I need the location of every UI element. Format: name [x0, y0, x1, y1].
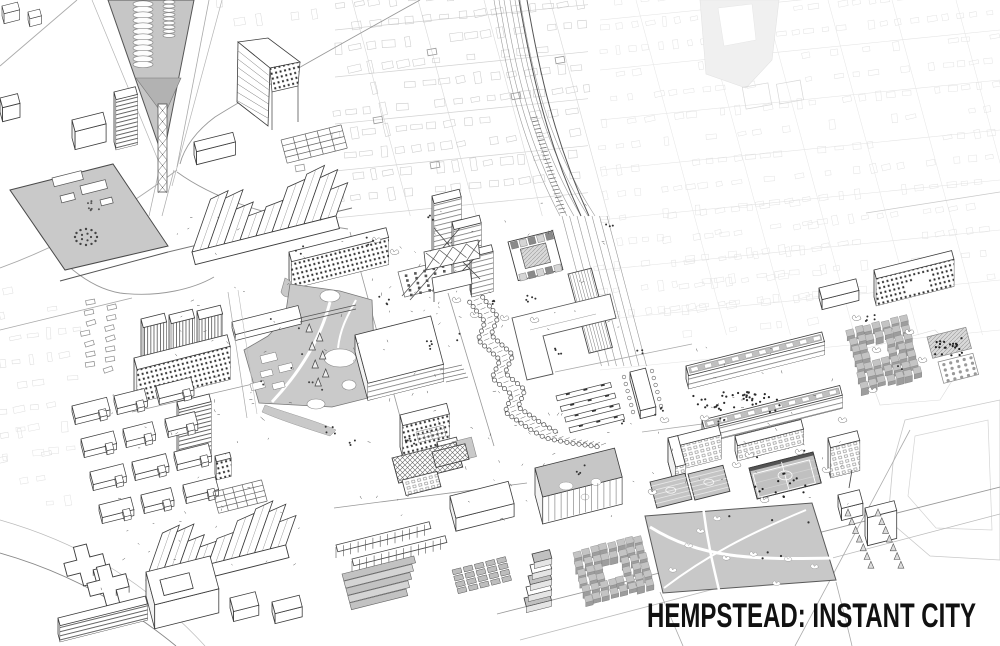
- svg-text:HEMPSTEAD: INSTANT CITY: HEMPSTEAD: INSTANT CITY: [647, 597, 976, 635]
